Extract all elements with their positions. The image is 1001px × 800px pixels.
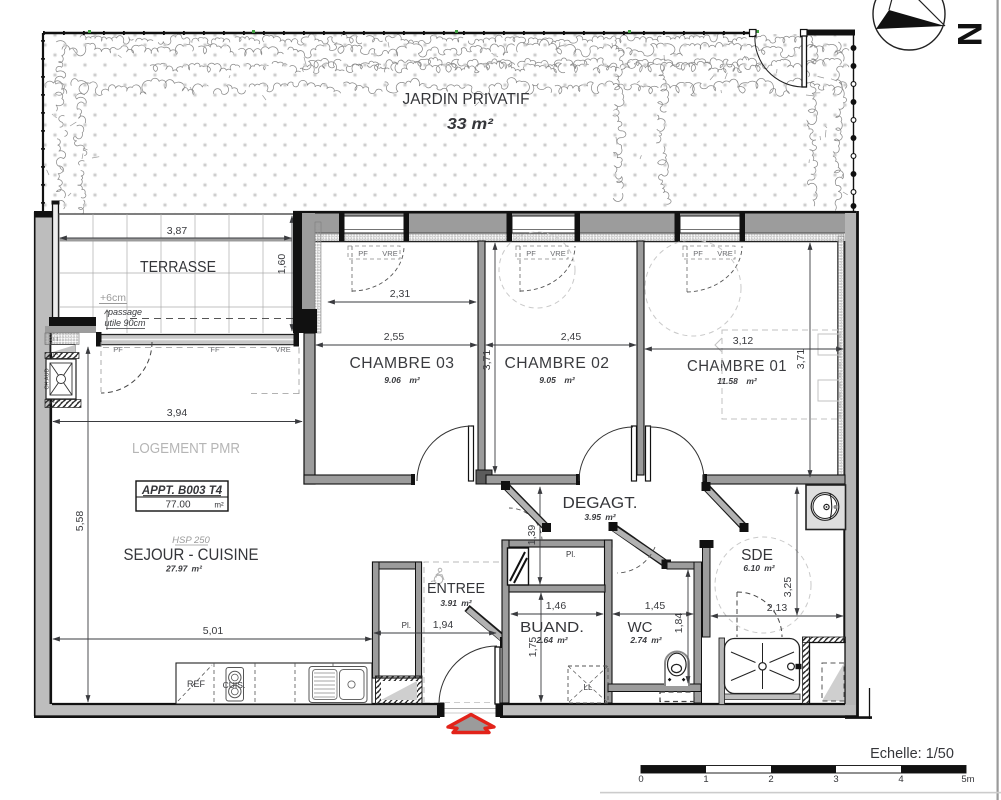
svg-text:Pl.: Pl.: [402, 621, 411, 630]
svg-text:1,45: 1,45: [645, 600, 666, 612]
svg-text:HSP 250: HSP 250: [172, 535, 210, 546]
svg-text:0: 0: [638, 774, 643, 785]
svg-text:2,13: 2,13: [767, 602, 788, 614]
svg-text:ENTREE: ENTREE: [427, 580, 485, 597]
svg-text:3,71: 3,71: [481, 350, 493, 371]
svg-text:utile 90cm: utile 90cm: [104, 318, 146, 328]
svg-text:5,58: 5,58: [74, 511, 86, 532]
svg-text:1,84: 1,84: [673, 613, 685, 634]
svg-text:VRE: VRE: [382, 249, 397, 258]
svg-text:3,94: 3,94: [167, 407, 188, 419]
svg-text:2.64 m²: 2.64 m²: [535, 635, 568, 645]
svg-text:BUAND.: BUAND.: [520, 619, 584, 636]
svg-text:LL: LL: [584, 683, 593, 692]
svg-text:27.97 m²: 27.97 m²: [165, 564, 203, 574]
svg-text:CHAMBRE 03: CHAMBRE 03: [350, 355, 455, 372]
svg-text:JARDIN PRIVATIF: JARDIN PRIVATIF: [403, 91, 530, 108]
svg-text:PF: PF: [526, 249, 536, 258]
svg-text:WC: WC: [628, 619, 653, 636]
svg-text:3,12: 3,12: [733, 335, 754, 347]
svg-text:9.05 m²: 9.05 m²: [539, 375, 576, 385]
svg-text:CHAMBRE 01: CHAMBRE 01: [687, 358, 787, 375]
svg-text:4: 4: [898, 774, 903, 785]
svg-text:LOGEMENT PMR: LOGEMENT PMR: [132, 441, 240, 457]
svg-text:3.91 m²: 3.91 m²: [440, 598, 472, 608]
svg-text:+6cm: +6cm: [100, 292, 126, 304]
svg-text:2: 2: [768, 774, 773, 785]
svg-text:VRE: VRE: [717, 249, 732, 258]
svg-text:VRE: VRE: [275, 345, 290, 354]
svg-text:VRE: VRE: [550, 249, 565, 258]
svg-text:3,71: 3,71: [795, 349, 807, 370]
svg-text:2,31: 2,31: [390, 288, 411, 300]
svg-text:2,45: 2,45: [561, 331, 582, 343]
svg-text:m²: m²: [214, 501, 224, 510]
svg-text:DEGAGT.: DEGAGT.: [563, 495, 638, 512]
svg-text:PF: PF: [358, 249, 368, 258]
svg-text:passage: passage: [107, 307, 142, 317]
svg-text:1,39: 1,39: [526, 525, 538, 546]
svg-text:REF: REF: [187, 679, 206, 689]
svg-text:2.74 m²: 2.74 m²: [629, 635, 662, 645]
svg-text:3,25: 3,25: [782, 577, 794, 598]
svg-text:PF: PF: [113, 345, 123, 354]
svg-text:SDE: SDE: [741, 547, 773, 564]
svg-text:6.10 m²: 6.10 m²: [743, 563, 775, 573]
svg-text:PF: PF: [693, 249, 703, 258]
svg-text:TERRASSE: TERRASSE: [140, 259, 216, 276]
svg-text:1,60: 1,60: [276, 254, 288, 275]
svg-text:1,94: 1,94: [433, 619, 454, 631]
svg-text:CH.AUD: CH.AUD: [45, 368, 51, 389]
svg-text:2,55: 2,55: [384, 331, 405, 343]
svg-text:5m: 5m: [961, 774, 974, 785]
svg-text:1,75: 1,75: [527, 637, 539, 658]
svg-text:1: 1: [703, 774, 708, 785]
svg-text:5,01: 5,01: [203, 625, 224, 637]
svg-text:11.58 m²: 11.58 m²: [717, 376, 758, 386]
svg-text:3.95 m²: 3.95 m²: [584, 512, 616, 522]
svg-text:77.00: 77.00: [165, 500, 190, 511]
svg-text:Echelle: 1/50: Echelle: 1/50: [870, 746, 954, 762]
svg-text:Pl.: Pl.: [566, 550, 575, 559]
svg-text:3,87: 3,87: [167, 225, 188, 237]
svg-text:FF: FF: [210, 345, 220, 354]
svg-text:9.06 m²: 9.06 m²: [384, 375, 421, 385]
svg-text:33 m²: 33 m²: [447, 116, 494, 133]
svg-text:APPT. B003 T4: APPT. B003 T4: [141, 485, 223, 497]
svg-text:1,46: 1,46: [546, 600, 567, 612]
svg-text:SEJOUR - CUISINE: SEJOUR - CUISINE: [124, 546, 259, 564]
svg-text:3: 3: [833, 774, 838, 785]
svg-text:N: N: [950, 22, 988, 47]
svg-text:CHAMBRE 02: CHAMBRE 02: [505, 355, 610, 372]
